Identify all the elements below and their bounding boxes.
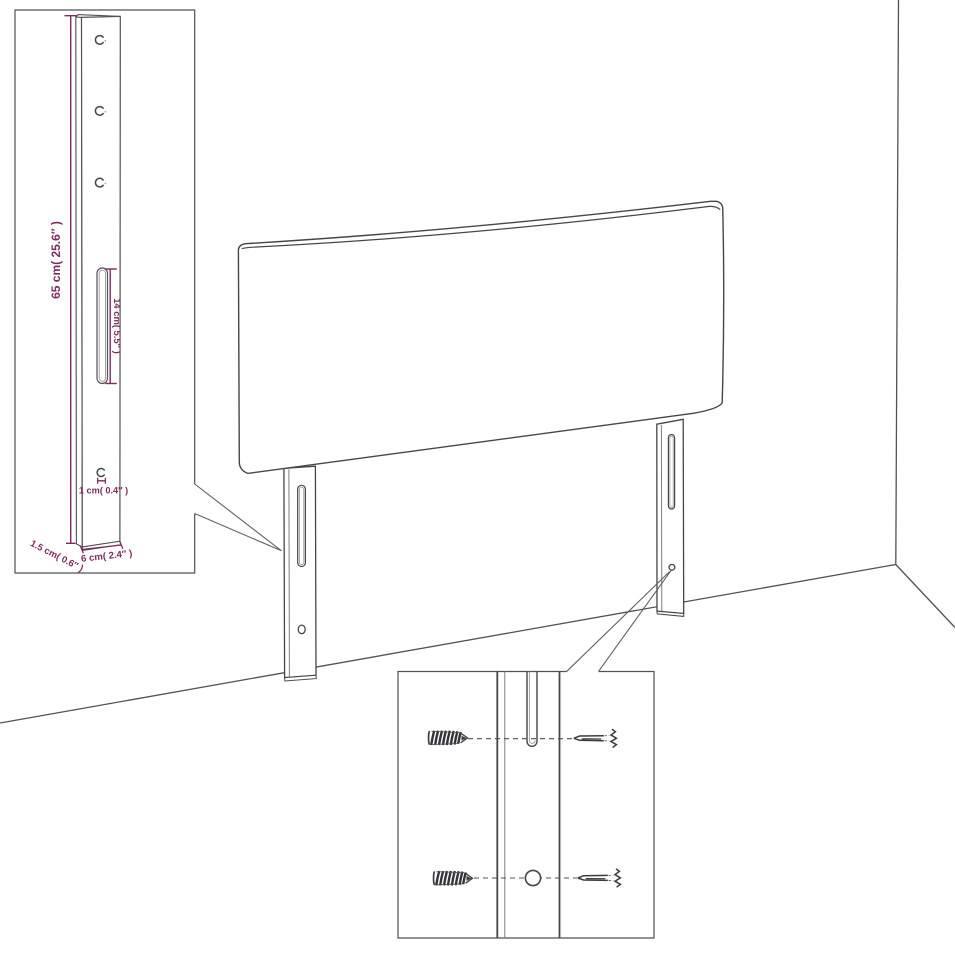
svg-text:65 cm( 25.6″ ): 65 cm( 25.6″ ): [49, 221, 63, 299]
svg-text:14 cm( 5.5″ ): 14 cm( 5.5″ ): [112, 298, 123, 354]
svg-text:1 cm( 0.4″ ): 1 cm( 0.4″ ): [79, 485, 128, 495]
